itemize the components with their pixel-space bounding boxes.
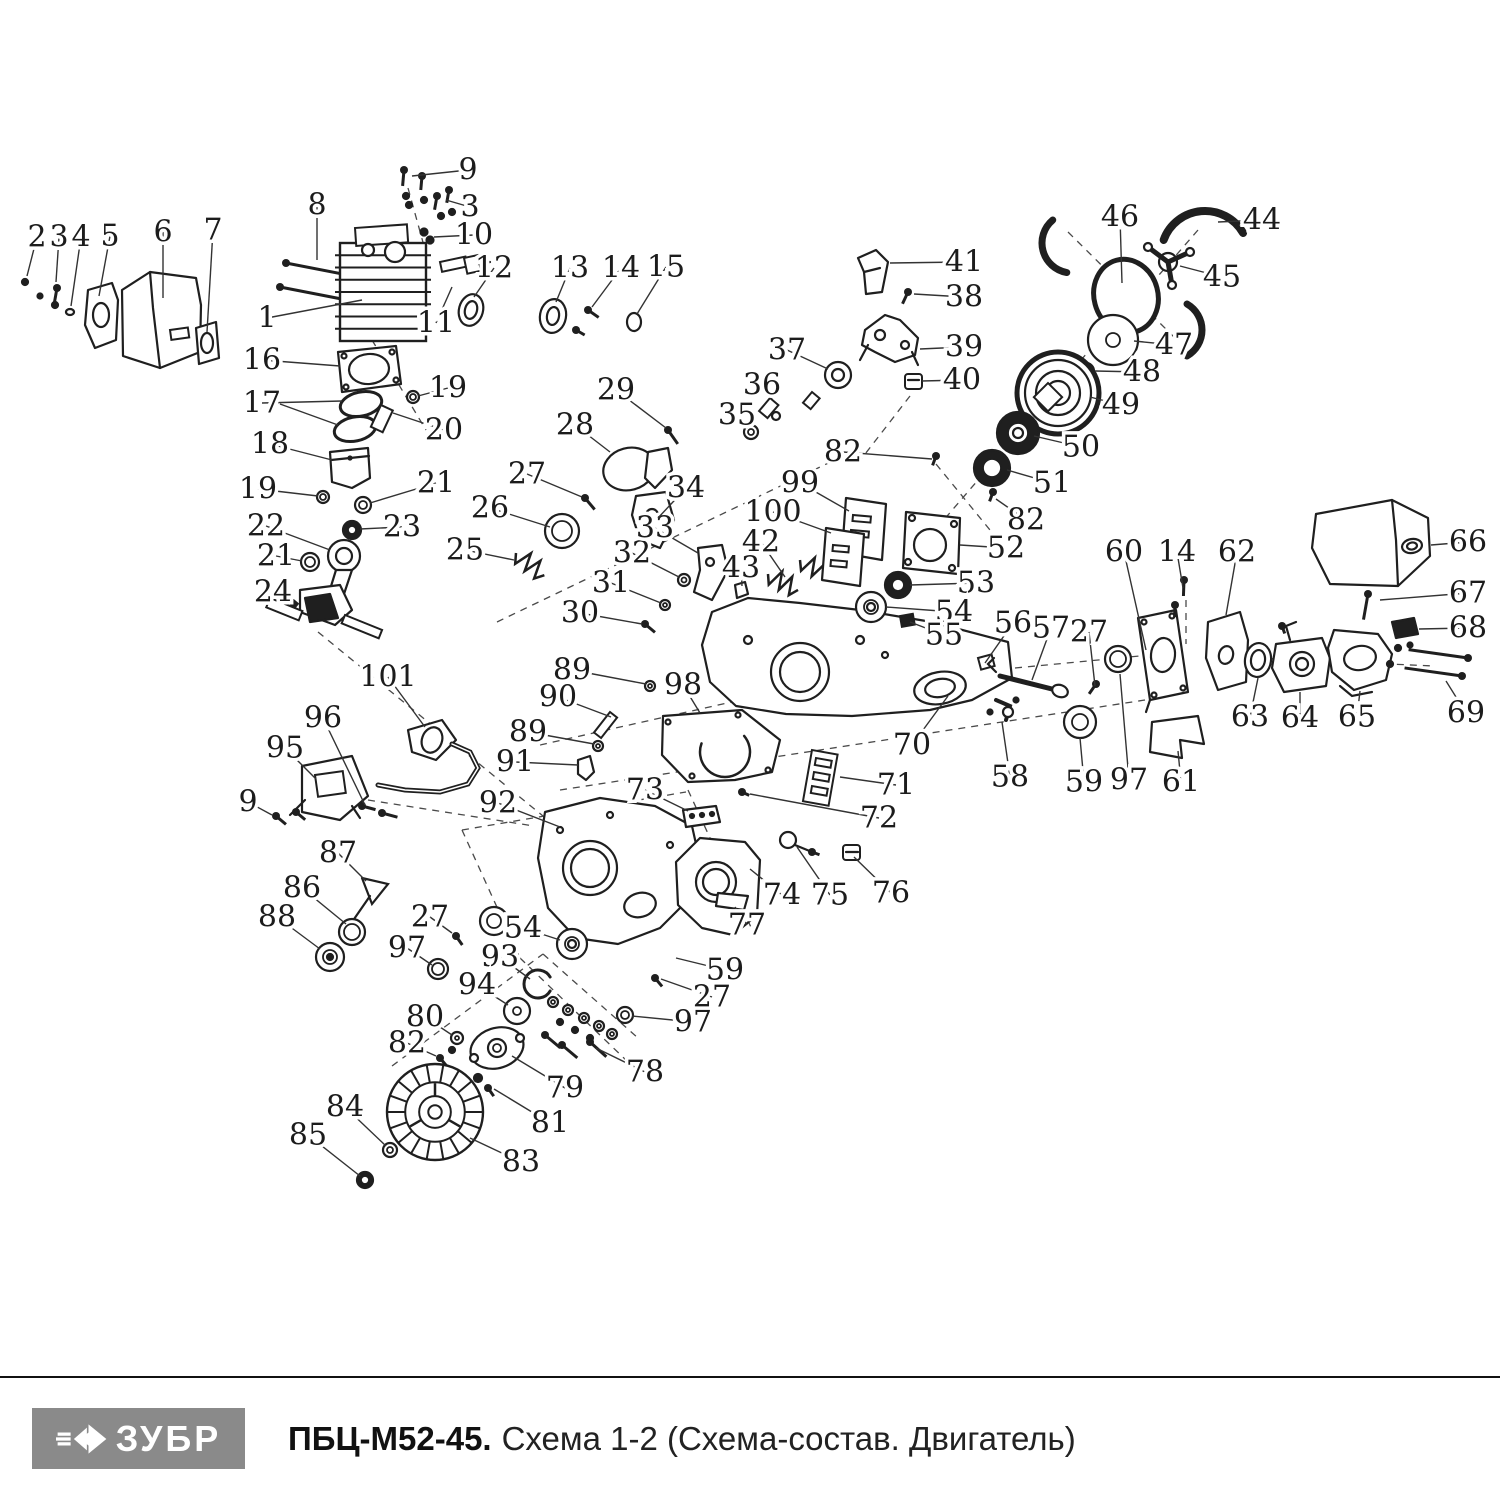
part-label-27: 27 xyxy=(508,457,546,492)
part-shape xyxy=(690,774,695,779)
part-label-75: 75 xyxy=(811,878,849,913)
part-label-82: 82 xyxy=(824,435,862,470)
part-label-97: 97 xyxy=(1110,763,1148,798)
part-label-10: 10 xyxy=(455,218,493,253)
part-label-64: 64 xyxy=(1281,701,1319,736)
part-label-38: 38 xyxy=(945,280,983,315)
exploded-parts-diagram: 1234567893101112131415161718191920212122… xyxy=(0,0,1500,1390)
part-shape xyxy=(690,814,694,818)
part-label-23: 23 xyxy=(383,510,421,545)
part-shape xyxy=(832,369,844,381)
part-label-85: 85 xyxy=(289,1118,327,1153)
part-shape xyxy=(348,526,356,534)
part-shape xyxy=(571,849,609,887)
part-shape xyxy=(421,197,427,203)
part-label-61: 61 xyxy=(1162,765,1200,800)
part-label-58: 58 xyxy=(991,760,1029,795)
part-label-96: 96 xyxy=(304,701,342,736)
part-label-88: 88 xyxy=(258,900,296,935)
part-shape xyxy=(122,272,201,368)
part-shape xyxy=(780,652,820,692)
part-label-14: 14 xyxy=(1158,535,1196,570)
part-label-60: 60 xyxy=(1105,535,1143,570)
part-shape xyxy=(666,720,671,725)
part-shape xyxy=(1013,428,1023,438)
part-shape xyxy=(811,786,828,796)
part-shape xyxy=(1296,658,1308,670)
part-label-78: 78 xyxy=(626,1055,664,1090)
part-shape xyxy=(449,1047,455,1053)
part-shape xyxy=(572,1027,578,1033)
brand-name: ЗУБР xyxy=(116,1418,221,1460)
part-shape xyxy=(1387,661,1393,667)
part-label-21: 21 xyxy=(417,466,455,501)
part-label-9: 9 xyxy=(458,153,477,188)
part-shape xyxy=(766,768,771,773)
part-label-35: 35 xyxy=(718,398,756,433)
part-label-33: 33 xyxy=(636,511,674,546)
part-shape xyxy=(1168,281,1176,289)
part-label-69: 69 xyxy=(1447,696,1485,731)
screw-shaft xyxy=(403,170,404,186)
part-shape xyxy=(52,302,58,308)
part-shape xyxy=(336,548,352,564)
part-shape xyxy=(361,1176,369,1184)
part-label-84: 84 xyxy=(326,1090,364,1125)
part-label-59: 59 xyxy=(1065,765,1103,800)
part-shape xyxy=(394,378,399,383)
parts-diagram-page: 1234567893101112131415161718191920212122… xyxy=(0,0,1500,1500)
part-shape xyxy=(607,812,613,818)
part-shape xyxy=(320,494,326,500)
part-label-29: 29 xyxy=(597,373,635,408)
part-shape xyxy=(487,914,501,928)
part-shape xyxy=(305,557,315,567)
brand-logo-icon xyxy=(56,1420,108,1458)
part-shape xyxy=(596,744,600,748)
part-shape xyxy=(815,758,832,768)
part-shape xyxy=(1106,333,1120,347)
part-label-97: 97 xyxy=(388,931,426,966)
part-label-22: 22 xyxy=(247,509,285,544)
part-label-41: 41 xyxy=(945,245,983,280)
part-shape xyxy=(421,229,428,236)
part-label-48: 48 xyxy=(1123,355,1161,390)
part-label-18: 18 xyxy=(251,427,289,462)
part-label-25: 25 xyxy=(446,533,484,568)
part-shape xyxy=(1144,243,1152,251)
part-shape xyxy=(1392,618,1418,638)
part-label-91: 91 xyxy=(496,745,534,780)
part-label-100: 100 xyxy=(744,495,801,530)
part-shape xyxy=(909,515,915,521)
part-shape xyxy=(663,603,667,607)
screw-shaft xyxy=(421,176,422,190)
part-label-4: 4 xyxy=(71,220,90,255)
part-label-94: 94 xyxy=(458,968,496,1003)
part-label-7: 7 xyxy=(203,213,222,248)
part-shape xyxy=(455,1036,459,1040)
part-shape xyxy=(1152,693,1157,698)
part-label-70: 70 xyxy=(893,728,931,763)
part-shape xyxy=(597,1024,601,1028)
part-shape xyxy=(667,842,673,848)
part-shape xyxy=(66,309,74,315)
part-label-77: 77 xyxy=(728,908,766,943)
part-shape xyxy=(327,954,333,960)
part-shape xyxy=(438,213,444,219)
part-shape xyxy=(706,558,714,566)
part-shape xyxy=(1003,707,1013,717)
part-shape xyxy=(875,330,885,340)
part-label-95: 95 xyxy=(266,731,304,766)
part-label-66: 66 xyxy=(1449,525,1487,560)
part-shape xyxy=(1406,542,1417,551)
part-label-1: 1 xyxy=(257,301,276,336)
part-label-36: 36 xyxy=(743,368,781,403)
part-label-65: 65 xyxy=(1338,700,1376,735)
part-shape xyxy=(627,313,641,331)
part-label-13: 13 xyxy=(551,251,589,286)
part-label-62: 62 xyxy=(1218,535,1256,570)
part-label-98: 98 xyxy=(664,668,702,703)
part-label-27: 27 xyxy=(1070,615,1108,650)
part-shape xyxy=(568,940,576,948)
part-label-12: 12 xyxy=(475,251,513,286)
part-label-51: 51 xyxy=(1033,466,1071,501)
part-shape xyxy=(949,565,955,571)
part-label-21: 21 xyxy=(257,539,295,574)
part-shape xyxy=(621,1011,629,1019)
part-label-56: 56 xyxy=(994,606,1032,641)
part-shape xyxy=(582,1016,586,1020)
screw-shaft xyxy=(1183,580,1184,596)
diagram-title: ПБЦ-М52-45. Схема 1-2 (Схема-состав. Дви… xyxy=(288,1408,1076,1469)
part-shape xyxy=(385,242,405,262)
part-label-9: 9 xyxy=(238,785,257,820)
scheme-name: Схема 1-2 (Схема-состав. Двигатель) xyxy=(502,1420,1076,1458)
part-label-71: 71 xyxy=(877,768,915,803)
part-label-44: 44 xyxy=(1243,203,1281,238)
part-shape xyxy=(449,209,455,215)
part-label-14: 14 xyxy=(602,251,640,286)
part-shape xyxy=(427,237,434,244)
part-label-39: 39 xyxy=(945,330,983,365)
part-label-79: 79 xyxy=(546,1071,584,1106)
part-shape xyxy=(38,294,43,299)
part-shape xyxy=(390,350,395,355)
part-shape xyxy=(170,327,189,339)
part-shape xyxy=(557,1019,563,1025)
part-shape xyxy=(566,1008,570,1012)
part-shape xyxy=(983,459,1001,477)
part-shape xyxy=(493,1044,501,1052)
part-label-40: 40 xyxy=(943,363,981,398)
part-label-16: 16 xyxy=(243,343,281,378)
part-label-50: 50 xyxy=(1062,430,1100,465)
part-label-30: 30 xyxy=(561,596,599,631)
part-label-83: 83 xyxy=(502,1145,540,1180)
part-label-67: 67 xyxy=(1449,576,1487,611)
part-shape xyxy=(410,394,416,400)
part-label-27: 27 xyxy=(411,900,449,935)
part-shape xyxy=(470,1054,478,1062)
part-label-6: 6 xyxy=(153,215,172,250)
part-shape xyxy=(201,333,213,353)
part-label-101: 101 xyxy=(359,660,416,695)
part-shape xyxy=(552,521,572,541)
part-label-73: 73 xyxy=(626,773,664,808)
part-shape xyxy=(557,827,563,833)
part-label-20: 20 xyxy=(425,413,463,448)
part-shape xyxy=(1072,714,1088,730)
flywheel-hub xyxy=(428,1105,441,1118)
part-shape xyxy=(513,1007,521,1015)
part-shape xyxy=(832,545,848,552)
part-shape xyxy=(682,578,687,583)
part-shape xyxy=(22,279,28,285)
model-code: ПБЦ-М52-45. xyxy=(288,1420,492,1458)
part-shape xyxy=(610,1032,614,1036)
part-label-24: 24 xyxy=(254,575,292,610)
part-shape xyxy=(772,412,780,420)
part-label-46: 46 xyxy=(1101,200,1139,235)
part-label-90: 90 xyxy=(539,680,577,715)
part-shape xyxy=(93,303,109,327)
part-label-82: 82 xyxy=(1007,503,1045,538)
part-label-45: 45 xyxy=(1203,260,1241,295)
part-shape xyxy=(362,244,374,256)
part-label-2: 2 xyxy=(27,220,46,255)
part-label-54: 54 xyxy=(504,911,542,946)
part-shape xyxy=(736,713,741,718)
part-shape xyxy=(344,385,349,390)
part-label-19: 19 xyxy=(239,472,277,507)
part-shape xyxy=(330,448,370,488)
part-shape xyxy=(744,636,752,644)
part-shape xyxy=(852,515,870,523)
part-label-55: 55 xyxy=(925,618,963,653)
part-shape xyxy=(900,614,915,627)
footer: ЗУБР ПБЦ-М52-45. Схема 1-2 (Схема-состав… xyxy=(0,1376,1500,1500)
part-label-34: 34 xyxy=(667,471,705,506)
part-label-74: 74 xyxy=(763,878,801,913)
part-shape xyxy=(403,193,409,199)
part-shape xyxy=(1395,645,1401,651)
part-shape xyxy=(856,636,864,644)
part-shape xyxy=(905,374,922,389)
part-shape xyxy=(905,559,911,565)
part-label-81: 81 xyxy=(531,1106,569,1141)
part-label-28: 28 xyxy=(556,408,594,443)
part-label-17: 17 xyxy=(243,386,281,421)
part-shape xyxy=(988,710,993,715)
part-shape xyxy=(359,501,367,509)
part-shape xyxy=(474,1074,482,1082)
part-label-49: 49 xyxy=(1102,388,1140,423)
part-shape xyxy=(406,202,412,208)
part-shape xyxy=(516,1034,524,1042)
part-shape xyxy=(830,560,846,567)
part-shape xyxy=(703,869,729,895)
part-label-87: 87 xyxy=(319,836,357,871)
part-shape xyxy=(1408,643,1413,648)
part-shape xyxy=(432,963,444,975)
part-label-57: 57 xyxy=(1032,611,1070,646)
part-shape xyxy=(901,341,909,349)
part-shape xyxy=(822,528,864,586)
part-shape xyxy=(1110,651,1126,667)
part-label-43: 43 xyxy=(722,551,760,586)
brand-logo: ЗУБР xyxy=(32,1408,245,1469)
part-label-82: 82 xyxy=(388,1026,426,1061)
part-label-59: 59 xyxy=(706,953,744,988)
part-shape xyxy=(780,832,796,848)
part-label-11: 11 xyxy=(417,306,455,341)
part-label-26: 26 xyxy=(471,491,509,526)
part-shape xyxy=(648,684,652,688)
part-shape xyxy=(1142,620,1147,625)
part-shape xyxy=(387,1147,393,1153)
part-label-92: 92 xyxy=(479,786,517,821)
part-shape xyxy=(710,812,714,816)
part-label-15: 15 xyxy=(647,250,685,285)
part-label-19: 19 xyxy=(429,371,467,406)
part-shape xyxy=(813,772,830,782)
part-shape xyxy=(951,521,957,527)
part-shape xyxy=(892,579,904,591)
part-shape xyxy=(1186,248,1194,256)
part-label-72: 72 xyxy=(860,801,898,836)
part-label-63: 63 xyxy=(1231,700,1269,735)
part-label-3: 3 xyxy=(49,220,68,255)
part-label-5: 5 xyxy=(100,219,119,254)
part-shape xyxy=(1181,686,1186,691)
part-shape xyxy=(315,771,346,797)
part-label-68: 68 xyxy=(1449,611,1487,646)
part-label-8: 8 xyxy=(307,188,326,223)
part-shape xyxy=(700,813,704,817)
part-label-37: 37 xyxy=(768,333,806,368)
part-shape xyxy=(1014,698,1019,703)
part-shape xyxy=(342,354,347,359)
part-shape xyxy=(867,603,875,611)
part-shape xyxy=(349,457,352,460)
part-shape xyxy=(551,1000,555,1004)
part-shape xyxy=(914,529,946,561)
part-label-31: 31 xyxy=(592,566,630,601)
part-label-76: 76 xyxy=(872,876,910,911)
part-shape xyxy=(344,924,360,940)
part-shape xyxy=(882,652,888,658)
